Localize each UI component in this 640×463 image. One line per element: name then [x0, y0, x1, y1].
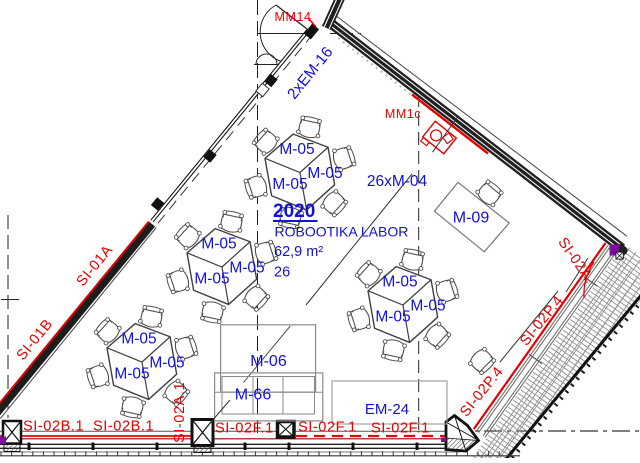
- svg-text:M-05: M-05: [375, 309, 410, 326]
- svg-text:62,9 m²: 62,9 m²: [274, 244, 323, 260]
- svg-text:2020: 2020: [273, 201, 315, 222]
- svg-text:M-05: M-05: [382, 274, 417, 291]
- svg-text:26xM-04: 26xM-04: [367, 173, 428, 190]
- svg-text:M-06: M-06: [250, 353, 287, 370]
- svg-text:MM1c: MM1c: [385, 107, 421, 121]
- svg-text:ROBOOTIKA LABOR: ROBOOTIKA LABOR: [275, 224, 409, 240]
- svg-text:M-05: M-05: [149, 355, 184, 372]
- svg-text:SI-01B: SI-01B: [14, 316, 57, 363]
- svg-text:M-05: M-05: [229, 260, 264, 277]
- svg-text:M-05: M-05: [410, 298, 445, 315]
- svg-text:M-05: M-05: [279, 141, 314, 158]
- svg-text:SI-02F.1: SI-02F.1: [371, 421, 430, 437]
- svg-text:M-05: M-05: [194, 271, 229, 288]
- svg-text:M-66: M-66: [235, 387, 272, 404]
- svg-text:EM-24: EM-24: [365, 401, 409, 418]
- svg-text:SI-02F.1: SI-02F.1: [215, 421, 274, 437]
- svg-text:M-09: M-09: [453, 210, 490, 227]
- svg-text:M-05: M-05: [272, 176, 307, 193]
- svg-text:M-05: M-05: [307, 165, 342, 182]
- svg-text:SI-01A: SI-01A: [74, 242, 117, 289]
- svg-text:SI-02B.1: SI-02B.1: [23, 419, 84, 435]
- svg-text:M-05: M-05: [201, 236, 236, 253]
- svg-text:M-05: M-05: [121, 331, 156, 348]
- svg-text:SI-02B.1: SI-02B.1: [93, 419, 154, 435]
- svg-text:26: 26: [274, 265, 290, 281]
- svg-text:SI-02F.1: SI-02F.1: [298, 420, 357, 436]
- svg-text:MM14: MM14: [275, 10, 312, 24]
- svg-text:M-05: M-05: [114, 366, 149, 383]
- svg-text:SI-02A.1: SI-02A.1: [172, 382, 188, 443]
- svg-text:SI-02A.: SI-02A.: [554, 235, 597, 287]
